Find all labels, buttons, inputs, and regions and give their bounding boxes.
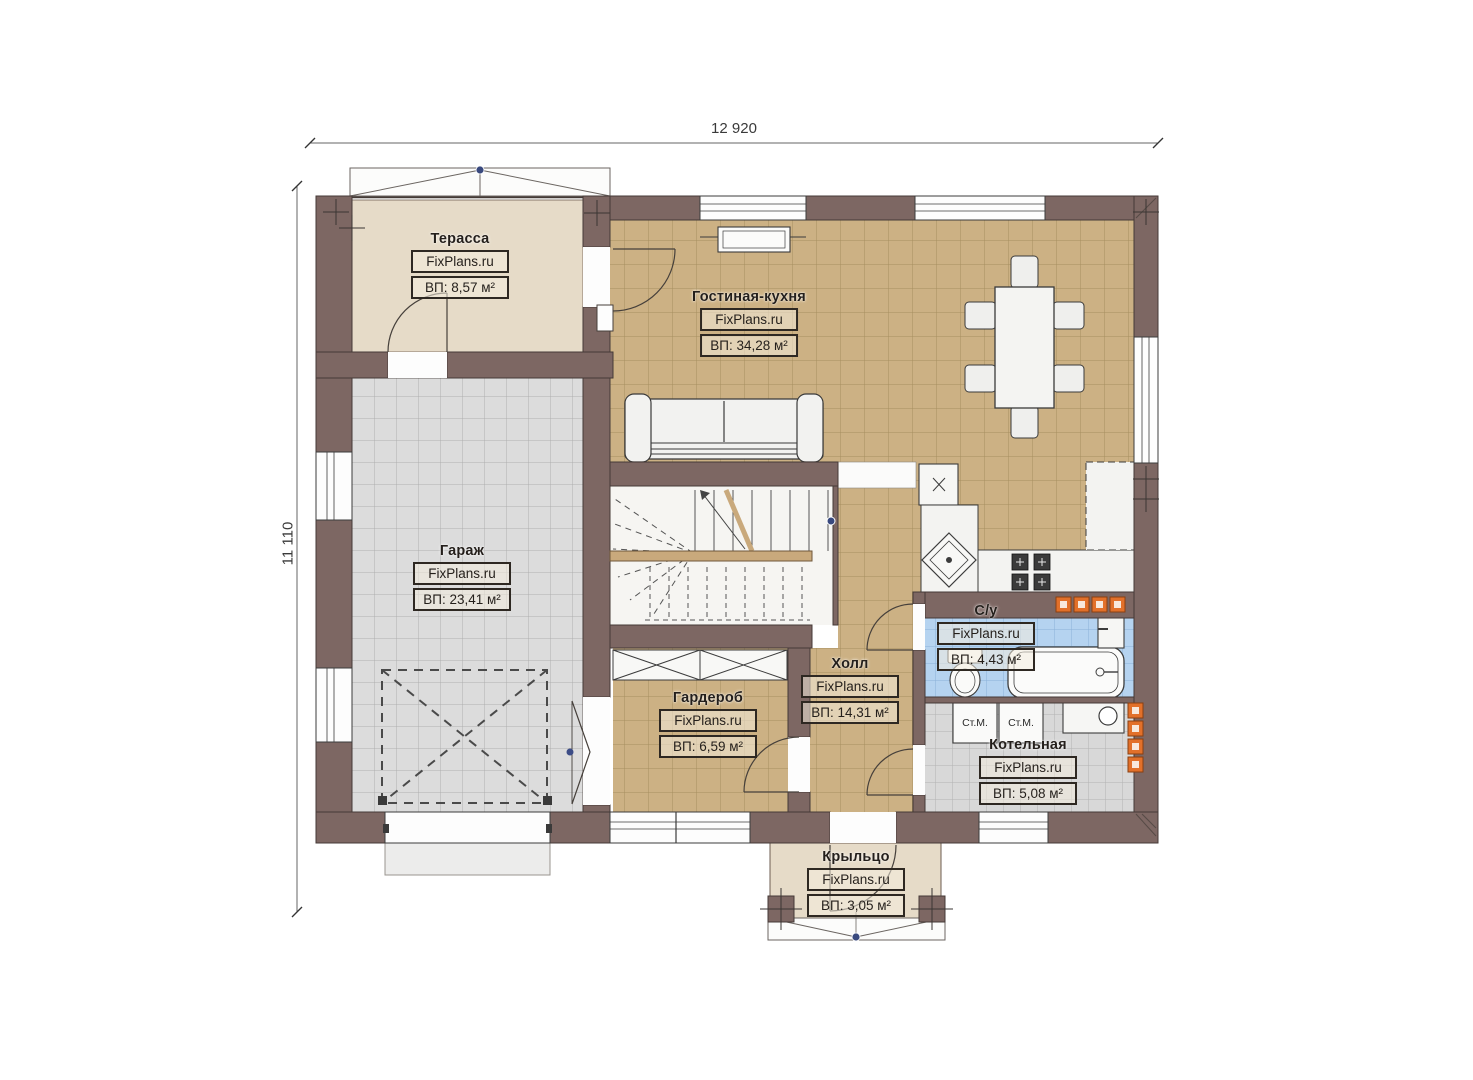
washer-right-label: Ст.М.: [1008, 717, 1034, 729]
room-area-boiler: ВП: 5,08 м²: [979, 782, 1077, 805]
chair: [965, 302, 996, 329]
room-label-bathroom: С/у FixPlans.ru ВП: 4,43 м²: [937, 603, 1035, 671]
wall-garage-living: [583, 805, 610, 812]
floor-plan-drawing: [0, 0, 1473, 1080]
wall-hall-bathroom: [913, 592, 925, 604]
window-right: [1134, 337, 1158, 463]
stairs-start-marker: [827, 517, 835, 525]
room-label-wardrobe: Гардероб FixPlans.ru ВП: 6,59 м²: [659, 690, 757, 758]
room-name-garage: Гараж: [413, 543, 511, 559]
room-brand-bathroom: FixPlans.ru: [937, 622, 1035, 645]
canopy-apex-marker: [476, 166, 484, 174]
canopy-apex-marker: [852, 933, 860, 941]
wall-hall-boiler: [913, 795, 925, 812]
wall-terrace-garage: [447, 352, 613, 378]
boiler-sink: [1099, 707, 1117, 725]
floor-corridor: [838, 592, 913, 648]
room-label-terrace: Терасса FixPlans.ru ВП: 8,57 м²: [411, 231, 509, 299]
room-area-garage: ВП: 23,41 м²: [413, 588, 511, 611]
room-area-bathroom: ВП: 4,43 м²: [937, 648, 1035, 671]
wardrobe-closet: [613, 650, 787, 680]
window-bottom-left: [610, 812, 750, 843]
wall-terrace-garage: [316, 352, 388, 378]
chair: [1011, 406, 1038, 438]
opening-terrace-living: [583, 247, 610, 307]
wall-stairs-top: [610, 462, 838, 486]
room-brand-terrace: FixPlans.ru: [411, 250, 509, 273]
wall-stairs-stringer: [833, 486, 838, 625]
room-area-terrace: ВП: 8,57 м²: [411, 276, 509, 299]
sofa: [625, 394, 823, 462]
room-name-wardrobe: Гардероб: [659, 690, 757, 706]
stairs-mid-rail: [610, 551, 812, 561]
window-garage-upper: [316, 452, 352, 520]
wall-bottom: [750, 812, 830, 843]
opening-boiler: [913, 745, 925, 795]
room-name-terrace: Терасса: [411, 231, 509, 247]
room-brand-garage: FixPlans.ru: [413, 562, 511, 585]
wall-bottom: [316, 812, 385, 843]
dimension-width-label: 12 920: [649, 120, 819, 137]
room-name-bathroom: С/у: [937, 603, 1035, 619]
room-brand-boiler: FixPlans.ru: [979, 756, 1077, 779]
room-name-boiler: Котельная: [979, 737, 1077, 753]
door-pivot-marker: [567, 749, 574, 756]
wall-hall-boiler: [913, 650, 925, 745]
room-name-living: Гостиная-кухня: [692, 289, 806, 305]
opening-wardrobe: [788, 737, 810, 792]
wall-bottom: [550, 812, 610, 843]
wall-top: [806, 196, 915, 220]
room-area-living: ВП: 34,28 м²: [700, 334, 798, 357]
wall-wardrobe-hall: [788, 792, 810, 812]
wall-left: [316, 196, 352, 452]
wall-right: [1134, 463, 1158, 843]
chair: [1011, 256, 1038, 288]
chair: [1053, 365, 1084, 392]
floor-plan-canvas: 12 920 11 110 Терасса FixPlans.ru ВП: 8,…: [0, 0, 1473, 1080]
kitchen-counter-right: [1086, 462, 1134, 550]
room-name-porch: Крыльцо: [807, 849, 905, 865]
opening-porch-entry: [830, 812, 896, 843]
room-label-boiler: Котельная FixPlans.ru ВП: 5,08 м²: [979, 737, 1077, 805]
room-brand-porch: FixPlans.ru: [807, 868, 905, 891]
dining-table: [995, 287, 1054, 408]
chair: [1053, 302, 1084, 329]
window-top-left: [700, 196, 806, 220]
wall-bottom: [1048, 812, 1158, 843]
canopy-terrace: [350, 166, 610, 196]
garage-apron: [385, 843, 550, 875]
room-name-hall: Холл: [801, 656, 899, 672]
opening-garage-hall: [583, 697, 610, 805]
opening-terrace-garage: [388, 352, 447, 378]
room-area-wardrobe: ВП: 6,59 м²: [659, 735, 757, 758]
wall-bathroom-boiler: [925, 697, 1134, 703]
window-garage-lower: [316, 668, 352, 742]
window-bottom-right: [979, 812, 1048, 843]
room-area-porch: ВП: 3,05 м²: [807, 894, 905, 917]
opening-bathroom: [913, 604, 925, 650]
room-label-hall: Холл FixPlans.ru ВП: 14,31 м²: [801, 656, 899, 724]
room-brand-hall: FixPlans.ru: [801, 675, 899, 698]
wall-stairs-bottom: [610, 625, 812, 648]
room-area-hall: ВП: 14,31 м²: [801, 701, 899, 724]
room-label-living: Гостиная-кухня FixPlans.ru ВП: 34,28 м²: [692, 289, 806, 357]
room-brand-living: FixPlans.ru: [700, 308, 798, 331]
window-top-right: [915, 196, 1045, 220]
dimension-height-label: 11 110: [280, 514, 297, 574]
room-label-garage: Гараж FixPlans.ru ВП: 23,41 м²: [413, 543, 511, 611]
kitchen-counter-bottom: [978, 550, 1134, 592]
room-brand-wardrobe: FixPlans.ru: [659, 709, 757, 732]
threshold-living-hall: [838, 462, 916, 488]
room-label-porch: Крыльцо FixPlans.ru ВП: 3,05 м²: [807, 849, 905, 917]
garage-door-opening: [383, 812, 552, 843]
washer-left-label: Ст.М.: [962, 717, 988, 729]
chair: [965, 365, 996, 392]
wall-left: [316, 520, 352, 668]
wall-bottom: [896, 812, 979, 843]
